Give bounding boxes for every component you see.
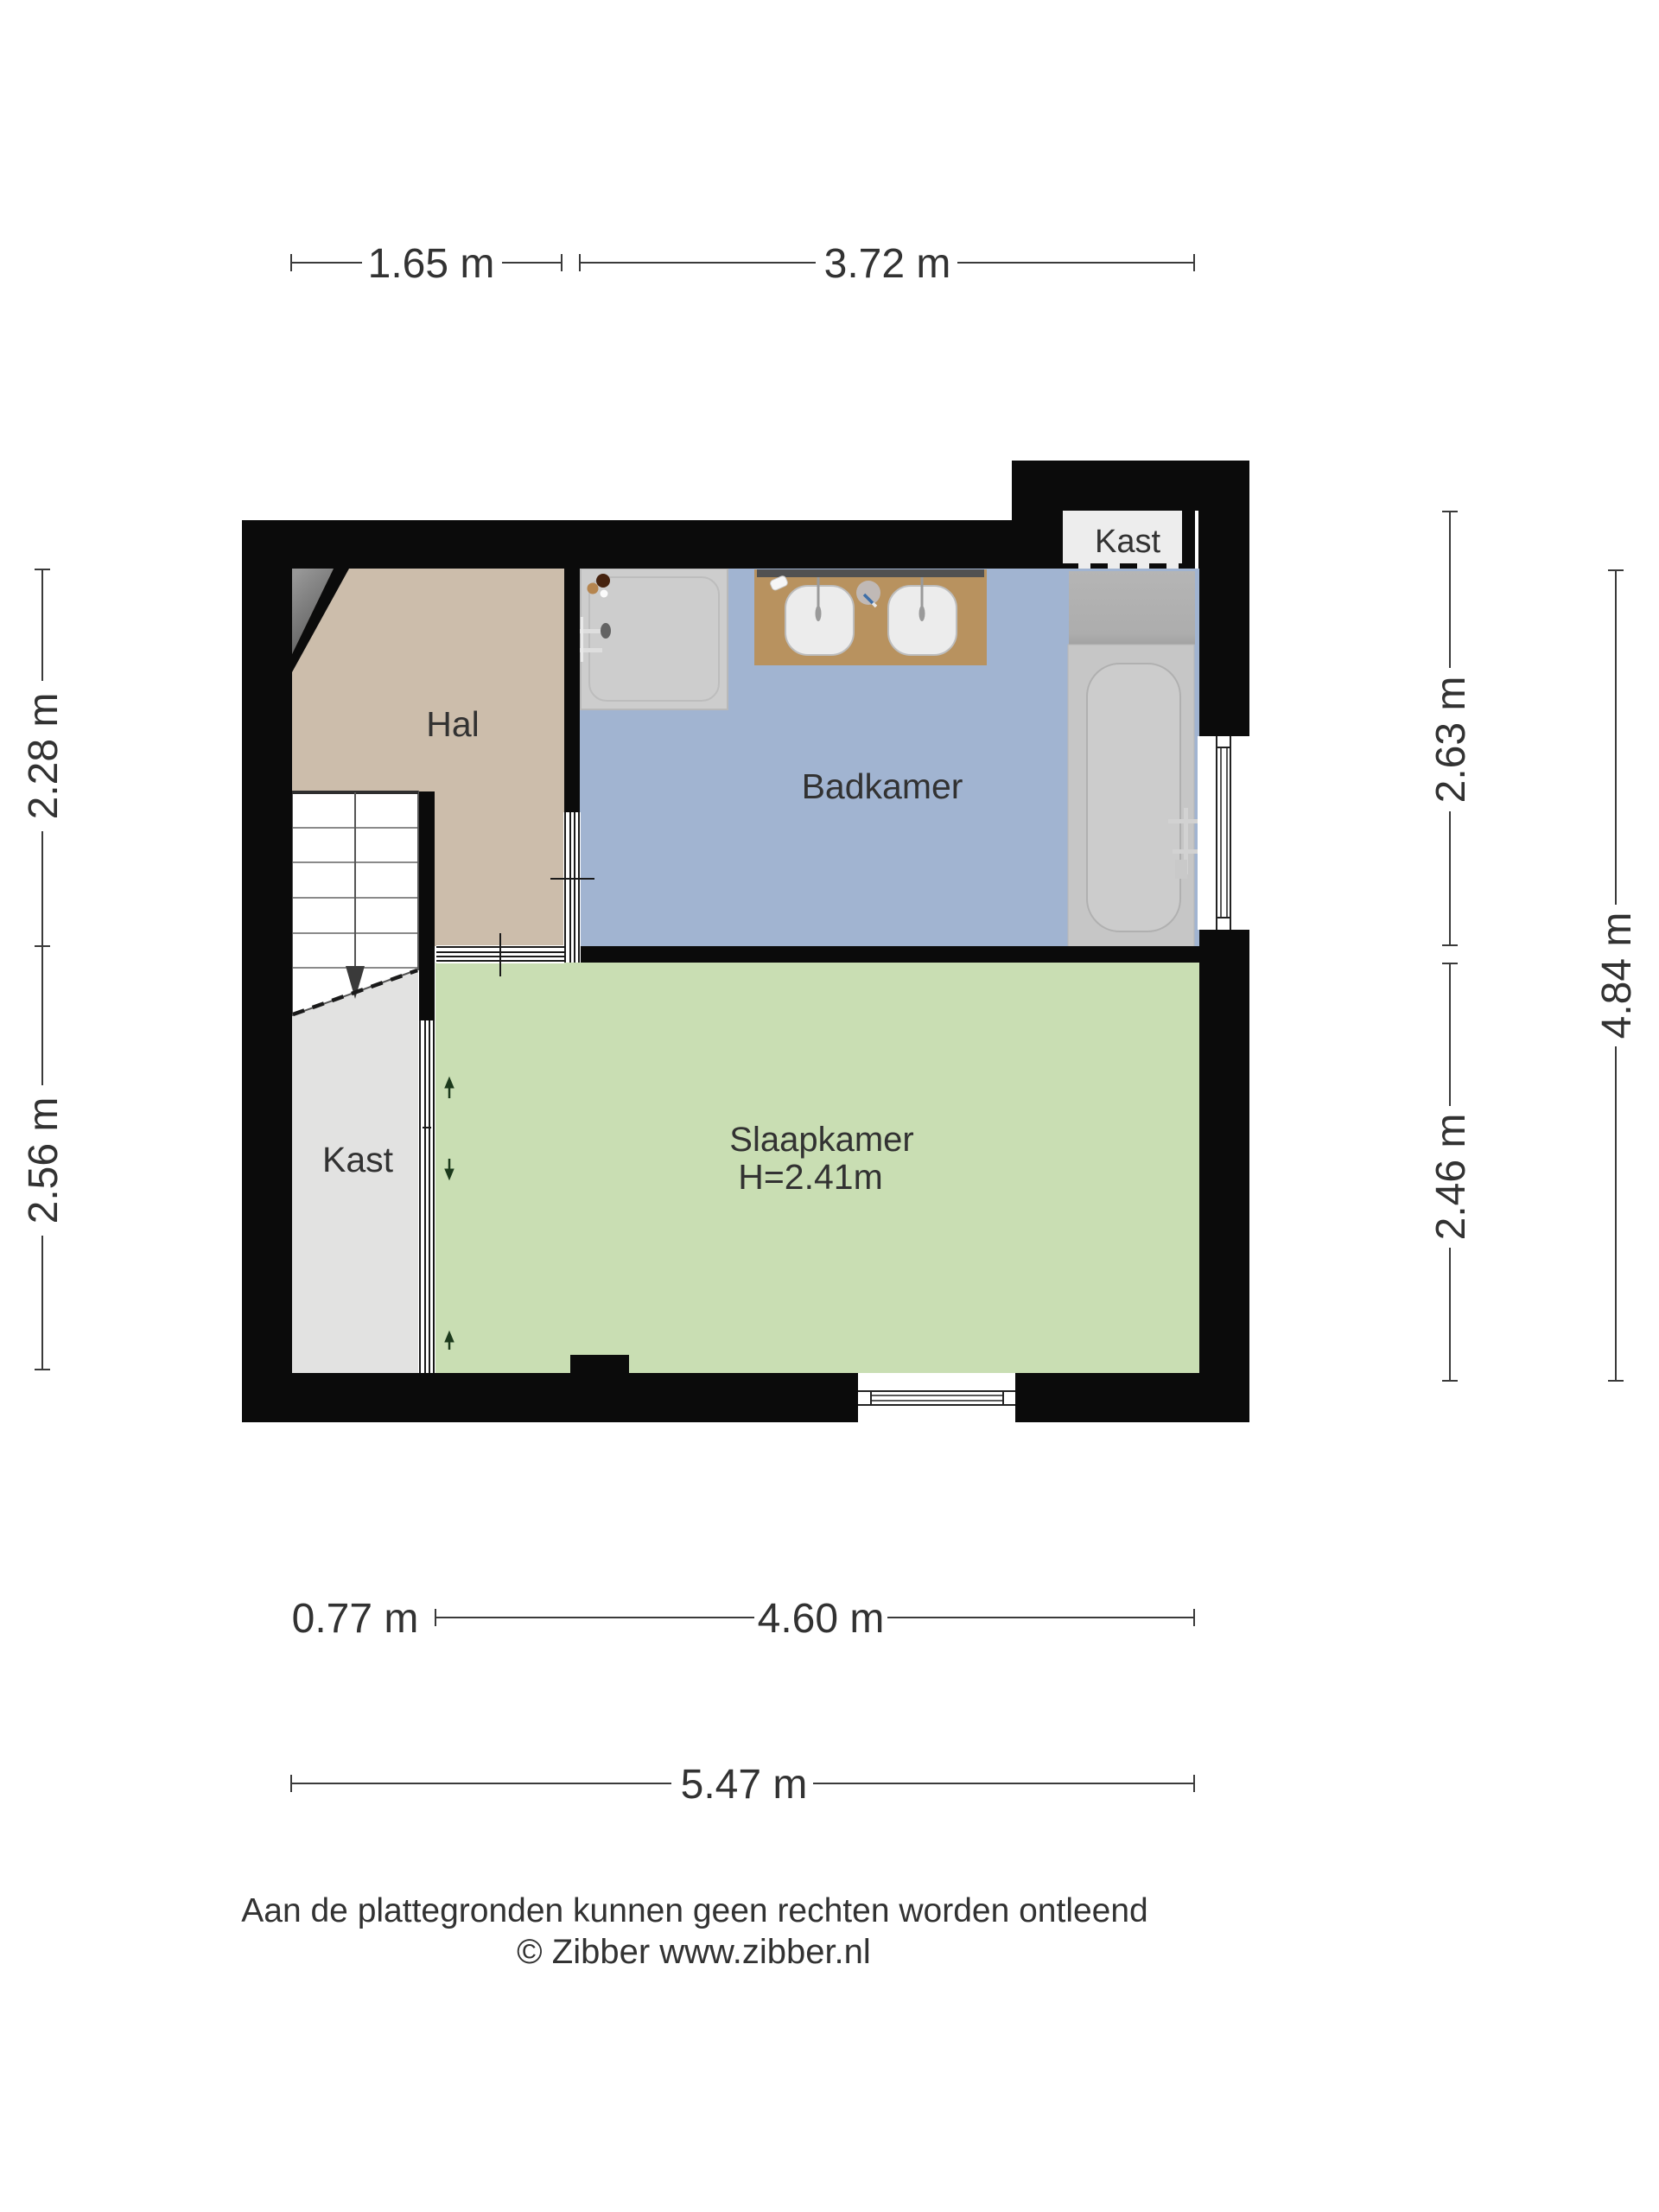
svg-text:4.60 m: 4.60 m — [758, 1596, 885, 1642]
svg-text:5.47 m: 5.47 m — [681, 1762, 808, 1808]
svg-text:2.28 m: 2.28 m — [21, 693, 67, 820]
svg-text:2.56 m: 2.56 m — [21, 1097, 67, 1224]
svg-text:2.46 m: 2.46 m — [1428, 1114, 1474, 1241]
svg-text:2.63 m: 2.63 m — [1428, 677, 1474, 804]
svg-text:0.77 m: 0.77 m — [292, 1596, 419, 1642]
svg-text:Slaapkamer: Slaapkamer — [729, 1121, 913, 1159]
svg-text:H=2.41m: H=2.41m — [738, 1157, 883, 1197]
svg-text:Badkamer: Badkamer — [802, 766, 963, 806]
svg-text:Hal: Hal — [426, 704, 480, 744]
svg-text:1.65 m: 1.65 m — [368, 241, 495, 287]
svg-text:Kast: Kast — [322, 1140, 394, 1179]
svg-text:Aan de plattegronden kunnen ge: Aan de plattegronden kunnen geen rechten… — [241, 1892, 1148, 1929]
svg-text:Kast: Kast — [1095, 524, 1160, 560]
svg-text:3.72 m: 3.72 m — [824, 241, 951, 287]
svg-text:4.84 m: 4.84 m — [1594, 912, 1640, 1039]
svg-text:© Zibber www.zibber.nl: © Zibber www.zibber.nl — [517, 1933, 871, 1971]
